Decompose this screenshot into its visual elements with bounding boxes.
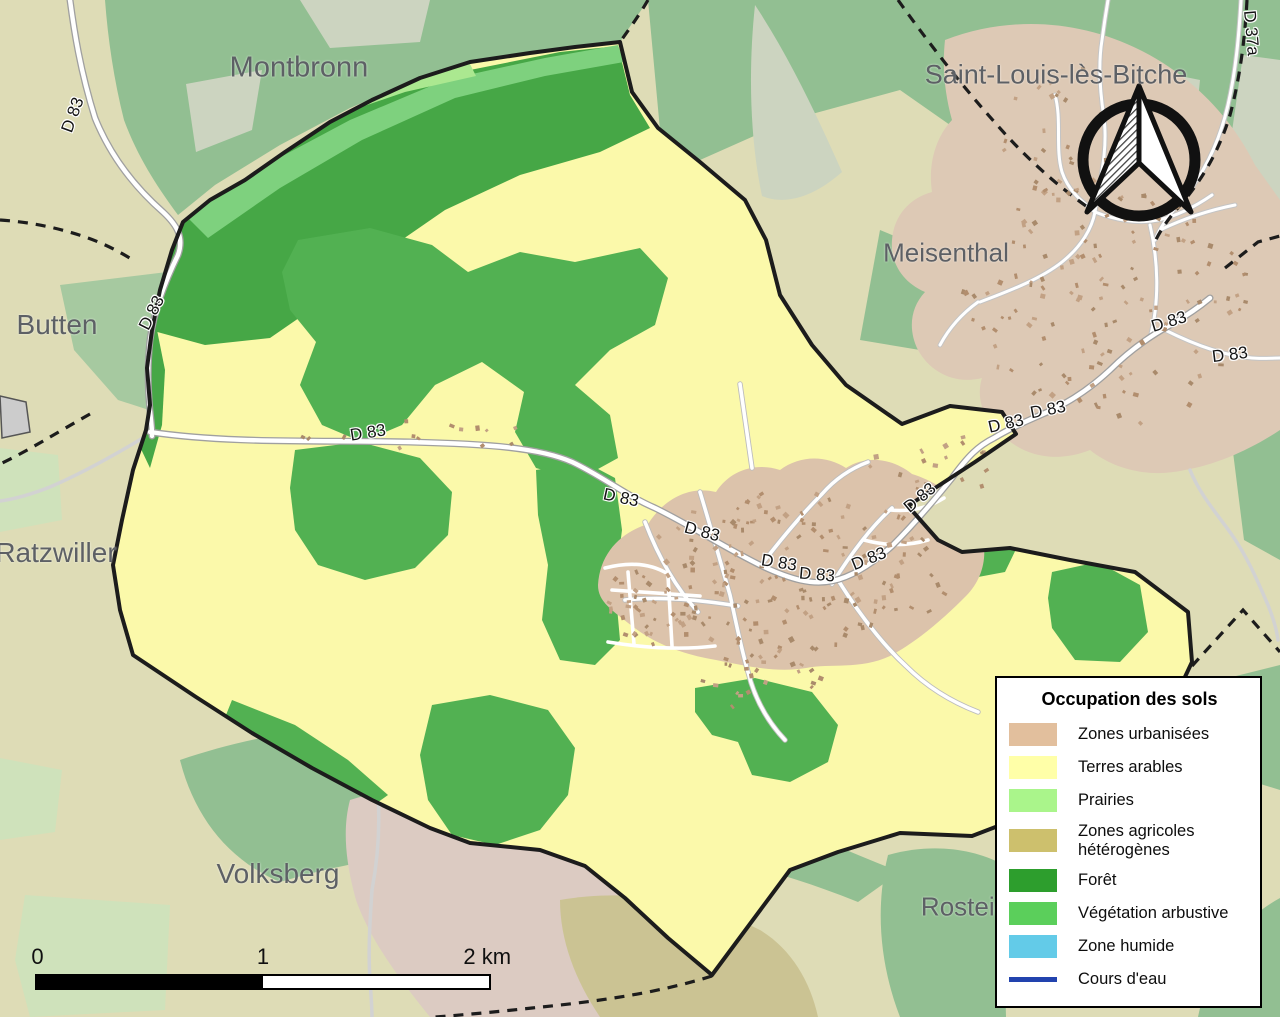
legend-item: Prairies: [1009, 789, 1252, 812]
legend-swatch: [1009, 756, 1057, 779]
map-canvas: Montbronn Saint-Louis-lès-Bitche Butten …: [0, 0, 1280, 1017]
legend-swatch: [1009, 789, 1057, 812]
legend-item: Zones agricoles hétérogènes: [1009, 822, 1252, 859]
scale-bar: 0 1 2 km: [35, 944, 491, 990]
legend-item: Zone humide: [1009, 935, 1252, 958]
legend-item-label: Zones urbanisées: [1078, 725, 1252, 744]
scale-label-0: 0: [31, 944, 43, 970]
legend-swatch: [1009, 935, 1057, 958]
legend-swatch: [1009, 829, 1057, 852]
legend-item-label: Terres arables: [1078, 758, 1252, 777]
scale-label-2: 2 km: [463, 944, 511, 970]
legend-swatch: [1009, 968, 1057, 991]
legend-item-label: Prairies: [1078, 791, 1252, 810]
legend-swatch: [1009, 869, 1057, 892]
legend-item-label: Cours d'eau: [1078, 970, 1252, 989]
industrial-building: [0, 396, 30, 438]
legend-item-label: Végétation arbustive: [1078, 904, 1252, 923]
legend-swatch: [1009, 723, 1057, 746]
legend-item: Terres arables: [1009, 756, 1252, 779]
legend-box: Occupation des sols Zones urbanisées Ter…: [995, 676, 1262, 1008]
legend-item: Zones urbanisées: [1009, 723, 1252, 746]
legend-swatch: [1009, 902, 1057, 925]
legend-item-label: Forêt: [1078, 871, 1252, 890]
legend-item: Cours d'eau: [1009, 968, 1252, 991]
scale-bar-segments: [35, 974, 491, 990]
legend-item-label: Zones agricoles hétérogènes: [1078, 822, 1252, 859]
legend-item: Forêt: [1009, 869, 1252, 892]
legend-item-label: Zone humide: [1078, 937, 1252, 956]
legend-title: Occupation des sols: [1007, 689, 1252, 710]
legend-item: Végétation arbustive: [1009, 902, 1252, 925]
scale-label-1: 1: [257, 944, 269, 970]
